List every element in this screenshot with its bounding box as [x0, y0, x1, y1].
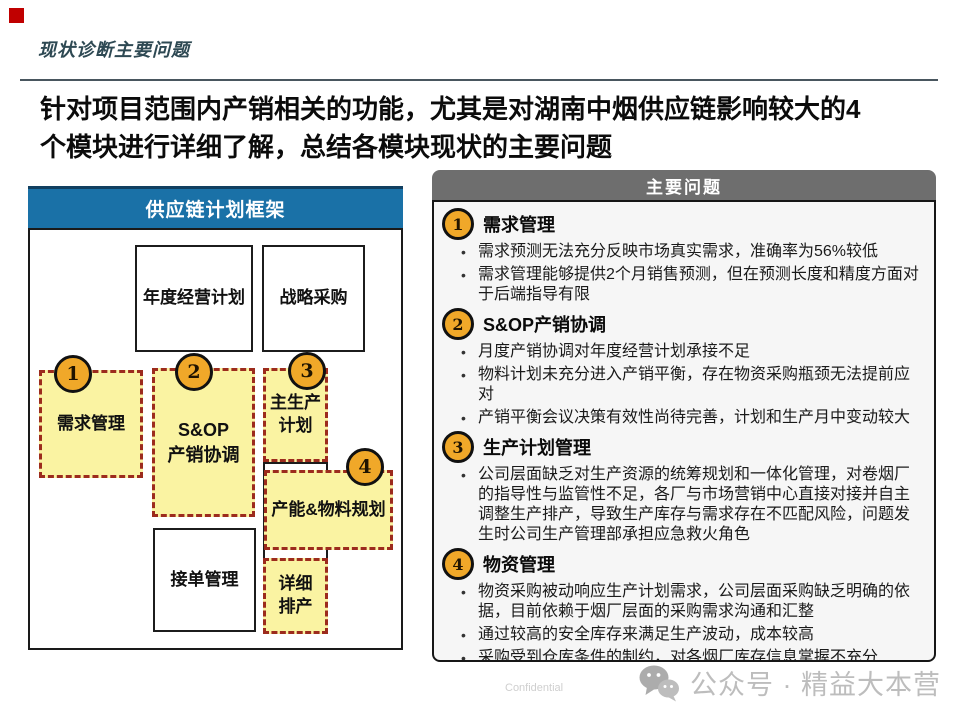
issue-section: 3 生产计划管理 公司层面缺乏对生产资源的统筹规划和一体化管理，对卷烟厂的指导性…	[442, 431, 926, 545]
issue-bullet-list: 公司层面缺乏对生产资源的统筹规划和一体化管理，对卷烟厂的指导性与监管性不足，各厂…	[442, 465, 926, 545]
box-order-management: 接单管理	[153, 528, 256, 632]
framework-badge-3: 3	[288, 352, 326, 390]
wechat-icon	[638, 664, 680, 702]
box-sop-line2: 产销协调	[168, 443, 240, 467]
issue-bullet: 月度产销协调对年度经营计划承接不足	[478, 342, 922, 362]
framework-badge-4-number: 4	[358, 456, 371, 478]
issue-section-head: 1 需求管理	[442, 208, 926, 240]
framework-badge-3-number: 3	[300, 360, 313, 382]
issue-number-badge: 3	[442, 431, 474, 463]
issue-number-badge: 1	[442, 208, 474, 240]
issue-bullet: 产销平衡会议决策有效性尚待完善，计划和生产月中变动较大	[478, 408, 922, 428]
issue-section-heading: 物资管理	[483, 551, 555, 577]
box-sop-line1: S&OP	[178, 418, 229, 442]
box-detail-line1: 详细	[279, 573, 313, 596]
heading-line-2: 个模块进行详细了解，总结各模块现状的主要问题	[40, 128, 860, 166]
framework-badge-4: 4	[346, 448, 384, 486]
box-sop: S&OP 产销协调	[152, 368, 255, 517]
issue-bullet: 需求管理能够提供2个月销售预测，但在预测长度和精度方面对于后端指导有限	[478, 265, 922, 305]
issue-bullet: 采购受到仓库条件的制约，对各烟厂库存信息掌握不充分	[478, 648, 922, 662]
watermark-text: 公众号 · 精益大本营	[690, 663, 941, 702]
framework-badge-1-number: 1	[66, 363, 79, 385]
issue-bullet-list: 需求预测无法充分反映市场真实需求，准确率为56%较低需求管理能够提供2个月销售预…	[442, 242, 926, 305]
issue-section: 2 S&OP产销协调 月度产销协调对年度经营计划承接不足物料计划未充分进入产销平…	[442, 308, 926, 428]
issue-number-badge: 4	[442, 548, 474, 580]
issue-number: 1	[452, 215, 463, 234]
confidential-label: Confidential	[505, 682, 563, 694]
issue-section-heading: 生产计划管理	[483, 434, 591, 460]
framework-panel-header: 供应链计划框架	[28, 186, 403, 228]
heading-line-1: 针对项目范围内产销相关的功能，尤其是对湖南中烟供应链影响较大的4	[40, 90, 860, 128]
box-annual-business-plan: 年度经营计划	[135, 245, 253, 352]
box-detailed-scheduling: 详细 排产	[263, 558, 328, 634]
issue-number: 2	[452, 315, 463, 334]
issue-bullet-list: 月度产销协调对年度经营计划承接不足物料计划未充分进入产销平衡，存在物资采购瓶颈无…	[442, 342, 926, 428]
box-detail-line2: 排产	[279, 596, 313, 619]
issue-bullet: 通过较高的安全库存来满足生产波动，成本较高	[478, 625, 922, 645]
box-mps-line2: 计划	[279, 415, 313, 438]
issues-panel-header: 主要问题	[432, 170, 936, 200]
issue-section-heading: 需求管理	[483, 211, 555, 237]
box-demand-management: 需求管理	[39, 370, 143, 478]
issues-sections: 1 需求管理 需求预测无法充分反映市场真实需求，准确率为56%较低需求管理能够提…	[432, 200, 936, 662]
issue-number: 3	[452, 438, 463, 457]
slide: 现状诊断主要问题 针对项目范围内产销相关的功能，尤其是对湖南中烟供应链影响较大的…	[0, 0, 960, 720]
issue-bullet: 物资采购被动响应生产计划需求，公司层面采购缺乏明确的依据，目前依赖于烟厂层面的采…	[478, 582, 922, 622]
issue-bullet: 物料计划未充分进入产销平衡，存在物资采购瓶颈无法提前应对	[478, 365, 922, 405]
framework-badge-1: 1	[54, 355, 92, 393]
issue-number-badge: 2	[442, 308, 474, 340]
framework-badge-2-number: 2	[187, 361, 200, 383]
issue-section: 1 需求管理 需求预测无法充分反映市场真实需求，准确率为56%较低需求管理能够提…	[442, 208, 926, 305]
box-mps-line1: 主生产	[270, 392, 321, 415]
issue-bullet: 需求预测无法充分反映市场真实需求，准确率为56%较低	[478, 242, 922, 262]
slide-heading: 针对项目范围内产销相关的功能，尤其是对湖南中烟供应链影响较大的4 个模块进行详细…	[40, 90, 860, 166]
box-strategic-sourcing: 战略采购	[262, 245, 365, 352]
issue-bullet: 公司层面缺乏对生产资源的统筹规划和一体化管理，对卷烟厂的指导性与监管性不足，各厂…	[478, 465, 922, 545]
slide-kicker-title: 现状诊断主要问题	[38, 36, 190, 62]
issue-section: 4 物资管理 物资采购被动响应生产计划需求，公司层面采购缺乏明确的依据，目前依赖…	[442, 548, 926, 662]
issue-section-head: 2 S&OP产销协调	[442, 308, 926, 340]
framework-badge-2: 2	[175, 353, 213, 391]
issue-section-head: 4 物资管理	[442, 548, 926, 580]
issue-section-heading: S&OP产销协调	[483, 311, 606, 337]
watermark: 公众号 · 精益大本营	[638, 663, 941, 702]
issue-bullet-list: 物资采购被动响应生产计划需求，公司层面采购缺乏明确的依据，目前依赖于烟厂层面的采…	[442, 582, 926, 662]
logo-square	[9, 8, 24, 23]
issue-section-head: 3 生产计划管理	[442, 431, 926, 463]
framework-diagram: 年度经营计划 战略采购 需求管理 S&OP 产销协调 主生产 计划 产能&物料规…	[28, 228, 403, 650]
issue-number: 4	[452, 555, 463, 574]
framework-panel: 供应链计划框架 年度经营计划 战略采购 需求管理 S&OP 产销协调 主生产 计…	[28, 186, 403, 650]
title-divider	[20, 79, 938, 81]
issues-panel: 主要问题 1 需求管理 需求预测无法充分反映市场真实需求，准确率为56%较低需求…	[432, 170, 936, 662]
